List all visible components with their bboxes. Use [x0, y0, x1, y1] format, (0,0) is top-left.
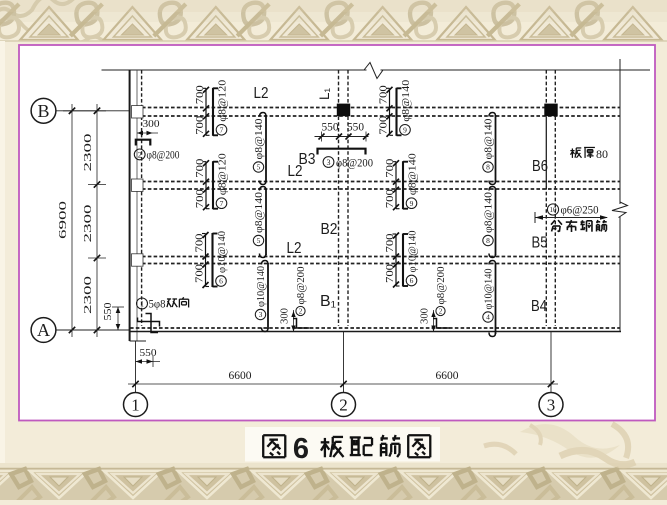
svg-text:5: 5	[257, 236, 261, 245]
svg-text:φ6@250: φ6@250	[561, 205, 599, 217]
svg-text:B5: B5	[532, 235, 548, 252]
svg-text:7: 7	[220, 199, 224, 208]
svg-text:φ8@200: φ8@200	[436, 267, 447, 305]
svg-text:φ8@120: φ8@120	[217, 153, 229, 196]
svg-text:5: 5	[257, 163, 261, 172]
svg-text:700: 700	[385, 189, 396, 208]
svg-text:φ8@200: φ8@200	[296, 267, 307, 305]
svg-text:1: 1	[131, 396, 140, 415]
svg-text:φ8@140: φ8@140	[254, 192, 265, 233]
svg-text:L2: L2	[287, 240, 302, 257]
svg-text:φ8@200: φ8@200	[147, 147, 180, 161]
svg-text:B: B	[37, 101, 49, 121]
svg-text:A: A	[37, 320, 50, 340]
svg-text:φ10@140: φ10@140	[256, 266, 267, 307]
svg-text:2: 2	[439, 308, 443, 316]
svg-text:3: 3	[259, 310, 263, 319]
svg-text:550: 550	[347, 120, 364, 134]
svg-text:300: 300	[280, 308, 291, 324]
svg-text:700: 700	[195, 85, 206, 104]
svg-text:2: 2	[299, 308, 303, 316]
svg-text:7: 7	[220, 126, 224, 135]
svg-text:φ8@140: φ8@140	[400, 79, 412, 122]
svg-text:550: 550	[103, 303, 114, 321]
svg-text:700: 700	[195, 189, 206, 208]
svg-text:B6: B6	[532, 158, 548, 175]
svg-text:φ10@140: φ10@140	[216, 231, 228, 273]
svg-text:700: 700	[195, 159, 206, 178]
svg-text:φ8@140: φ8@140	[484, 192, 495, 233]
svg-text:L2: L2	[254, 85, 269, 102]
svg-text:2300: 2300	[82, 204, 94, 243]
svg-text:9: 9	[403, 126, 407, 135]
svg-text:φ8@140: φ8@140	[484, 119, 495, 160]
svg-text:3: 3	[327, 158, 331, 167]
svg-text:B4: B4	[531, 298, 547, 315]
svg-text:6600: 6600	[436, 370, 459, 382]
svg-text:10: 10	[550, 206, 558, 214]
svg-text:1: 1	[140, 299, 144, 308]
svg-text:700: 700	[379, 116, 390, 135]
svg-text:6900: 6900	[57, 200, 69, 239]
svg-text:700: 700	[385, 264, 396, 283]
svg-text:φ8@140: φ8@140	[407, 153, 419, 196]
svg-text:700: 700	[195, 264, 206, 283]
svg-text:300: 300	[420, 308, 431, 324]
svg-text:8: 8	[486, 236, 490, 245]
svg-text:L2: L2	[288, 163, 303, 180]
svg-text:6: 6	[410, 276, 414, 285]
svg-text:φ8@120: φ8@120	[217, 79, 229, 122]
svg-text:300: 300	[143, 119, 160, 130]
svg-text:8: 8	[486, 163, 490, 172]
svg-text:700: 700	[195, 234, 206, 253]
svg-text:550: 550	[322, 120, 339, 134]
svg-text:2300: 2300	[82, 133, 94, 172]
svg-text:80: 80	[596, 147, 608, 161]
svg-text:6: 6	[293, 433, 309, 465]
svg-text:5φ8: 5φ8	[149, 297, 166, 311]
svg-text:φ8@200: φ8@200	[336, 156, 373, 170]
svg-text:700: 700	[385, 159, 396, 178]
svg-text:2300: 2300	[82, 275, 94, 314]
svg-text:φ10@140: φ10@140	[407, 230, 419, 272]
svg-text:L₁: L₁	[317, 88, 332, 101]
svg-text:9: 9	[410, 199, 414, 208]
svg-text:4: 4	[486, 313, 490, 322]
svg-text:2: 2	[339, 396, 348, 415]
svg-text:700: 700	[385, 234, 396, 253]
svg-text:2: 2	[138, 150, 142, 159]
svg-text:700: 700	[379, 85, 390, 104]
svg-text:6: 6	[219, 277, 223, 286]
svg-text:φ10@140: φ10@140	[484, 269, 495, 310]
svg-text:B2: B2	[321, 221, 338, 238]
svg-text:φ8@140: φ8@140	[254, 119, 265, 160]
svg-text:B₁: B₁	[320, 293, 336, 310]
svg-text:700: 700	[195, 116, 206, 135]
svg-text:3: 3	[547, 396, 556, 415]
svg-text:6600: 6600	[229, 370, 252, 382]
svg-text:550: 550	[140, 348, 157, 359]
